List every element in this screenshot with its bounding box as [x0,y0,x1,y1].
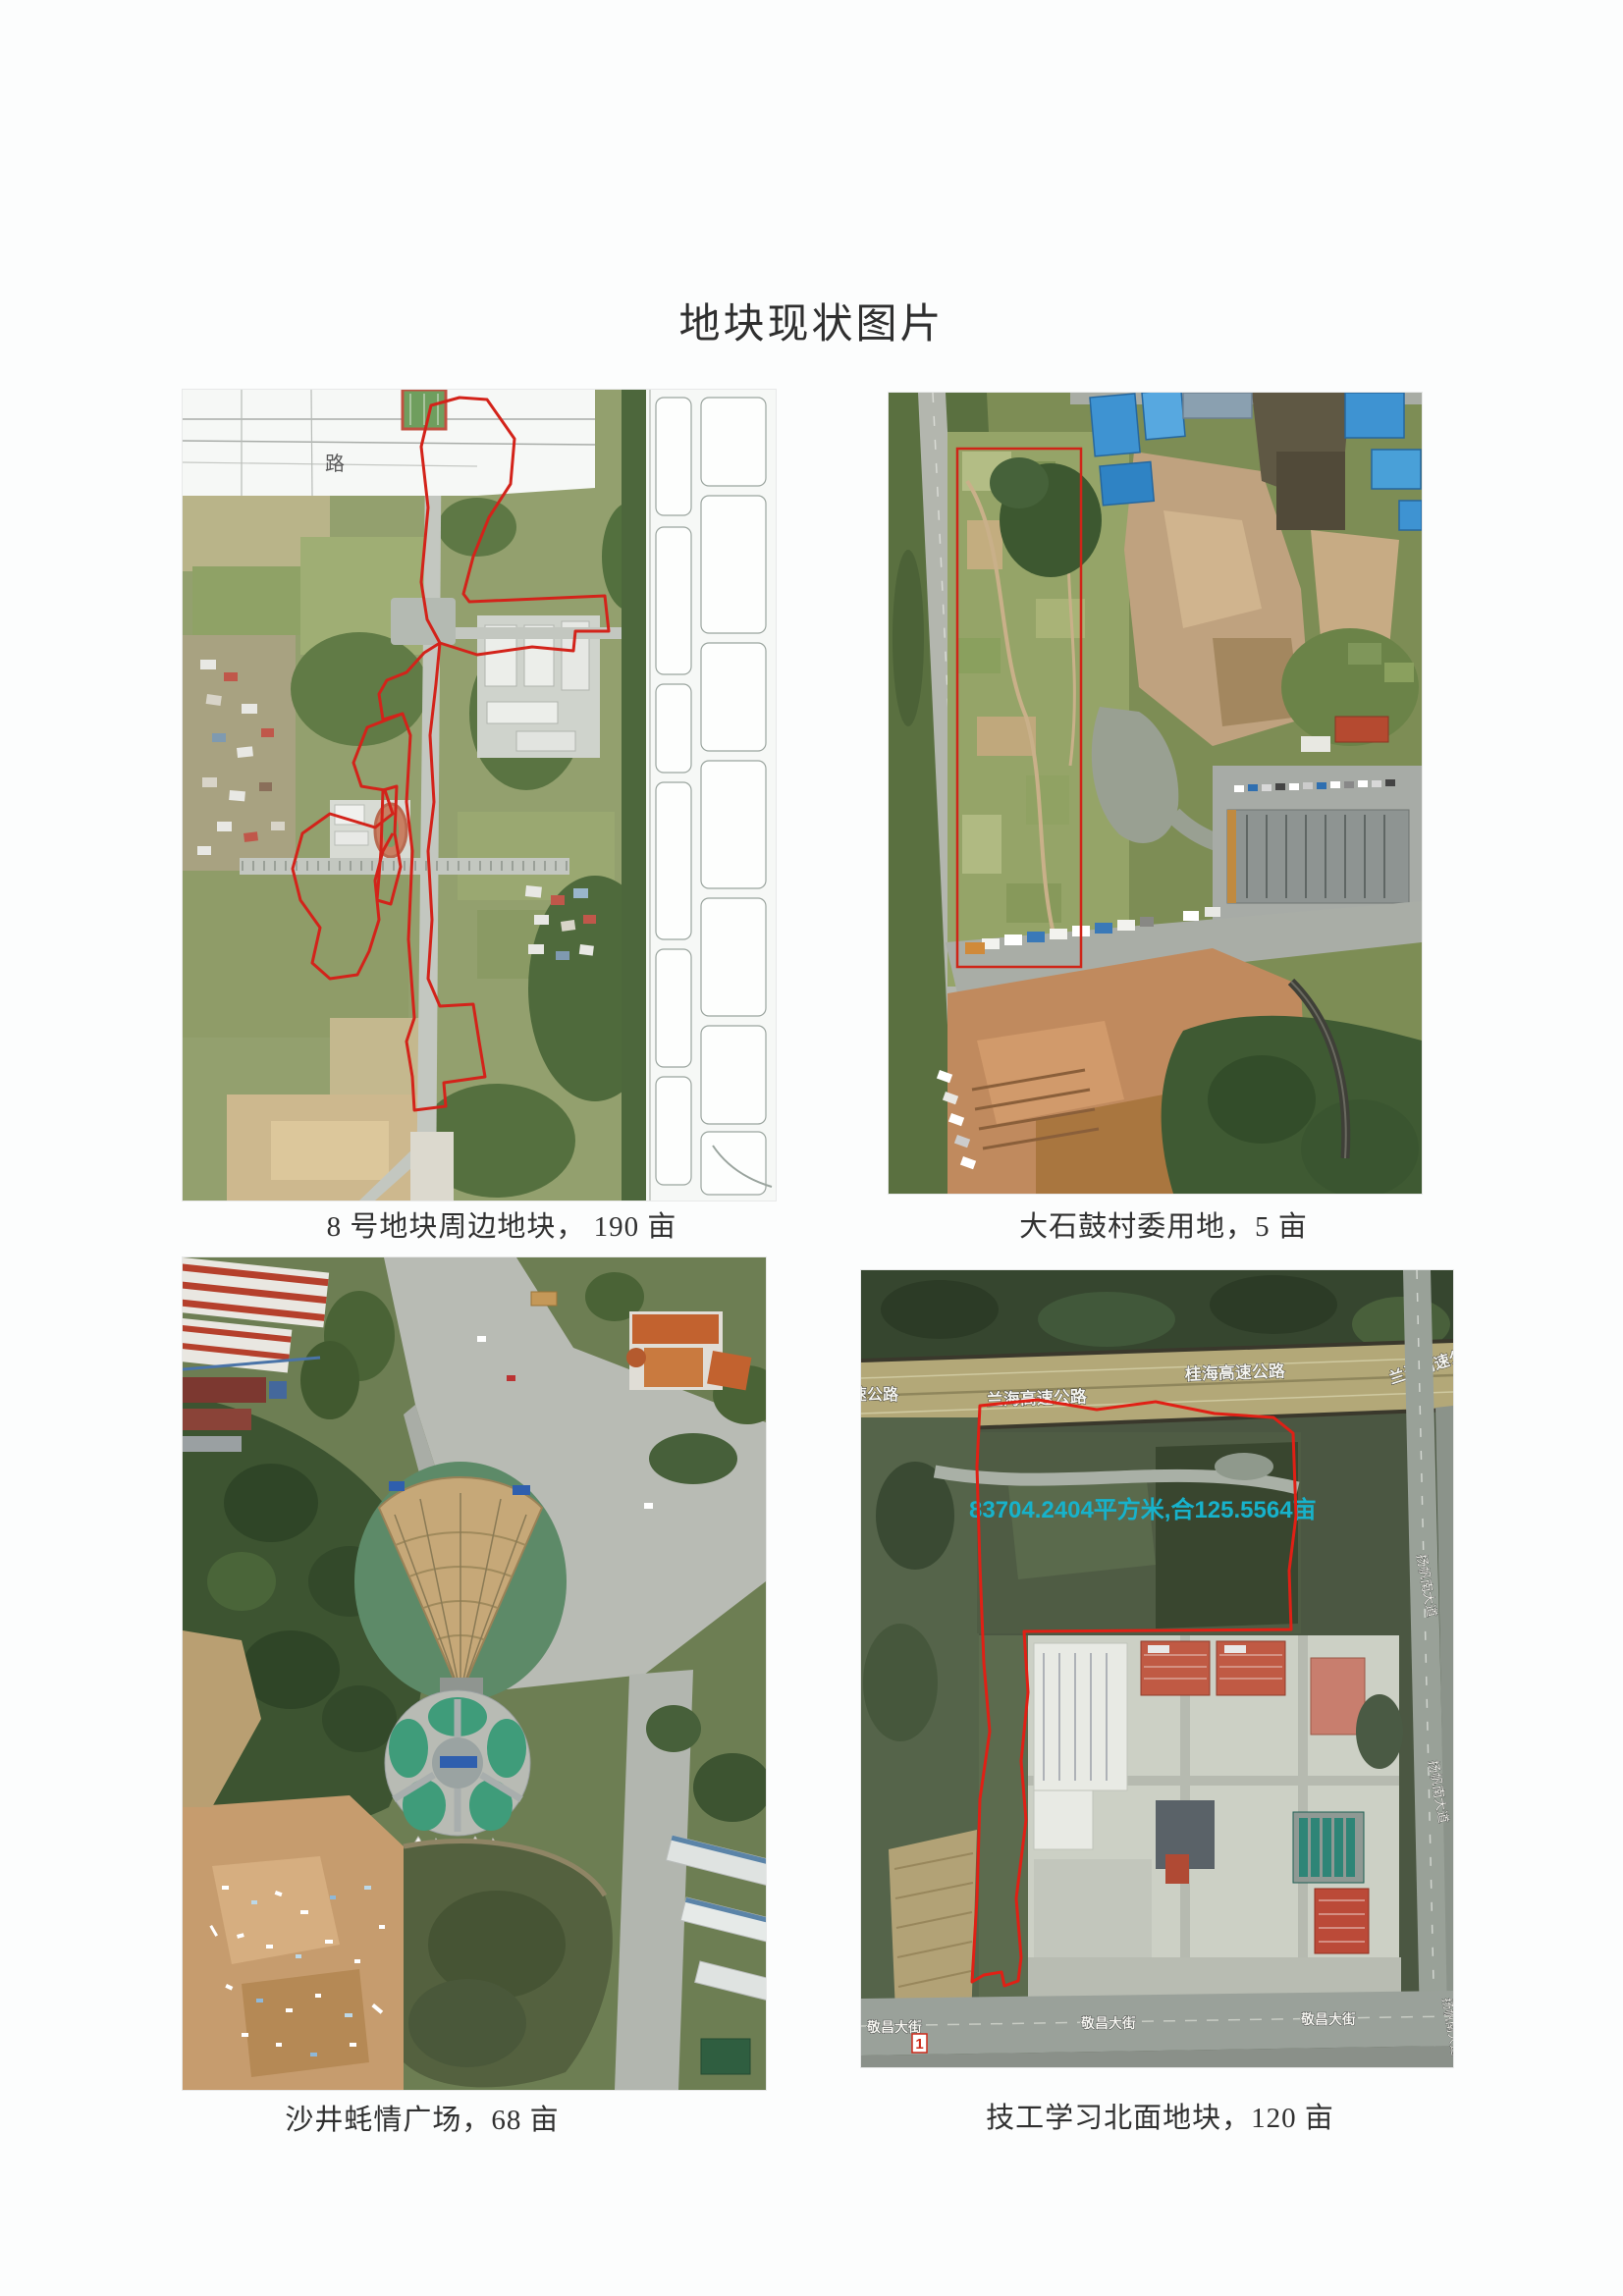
jigong-highway-label-gui: 桂海高速公路 [1183,1361,1286,1384]
dashigu-map [889,393,1422,1194]
shajing-pond [387,1841,613,2087]
aerial-image-dashigu [889,393,1422,1194]
jigong-street-label-2: 敬昌大街 [1080,2015,1136,2031]
plot8-road-label: 路 [325,453,345,475]
jigong-marker-label: 1 [915,2036,923,2053]
aerial-image-plot8: 路 [183,390,776,1201]
plot8-map: 路 [183,390,776,1201]
plot8-tree-strip [622,390,646,1201]
jigong-street-label-1: 敬昌大街 [866,2019,922,2035]
jigong-map: 桂海高速公路 兰海高速公路 兰海高速公路 兰海高速公路 扬帆南大道 扬帆南大道 [861,1270,1453,2067]
caption-plot8: 8 号地块周边地块， 190 亩 [183,1203,821,1245]
jigong-campus [1028,1635,1403,1999]
caption-shajing: 沙井蚝情广场，68 亩 [147,2097,697,2138]
shajing-map [183,1257,766,2090]
plot8-planning-overlay: 路 [183,390,595,496]
caption-dashigu: 大石鼓村委用地，5 亩 [889,1203,1438,1245]
page-title: 地块现状图片 [0,291,1623,350]
caption-jigong: 技工学习北面地块，120 亩 [864,2095,1456,2136]
plot8-cadastral-column [646,390,776,1201]
jigong-highway-label-lan-left: 兰海高速公路 [861,1385,899,1404]
document-page: 地块现状图片 [0,0,1623,2296]
jigong-bottom-street: 敬昌大街 敬昌大街 敬昌大街 扬帆南大道 1 [861,1991,1453,2067]
jigong-street-label-3: 敬昌大街 [1300,2011,1356,2027]
shajing-circle-plaza [385,1690,530,1836]
aerial-image-shajing [183,1257,766,2090]
jigong-area-text: 83704.2404平方米,合125.5564亩 [969,1496,1317,1523]
jigong-plot-interior: 83704.2404平方米,合125.5564亩 [935,1432,1317,1633]
aerial-image-jigong: 桂海高速公路 兰海高速公路 兰海高速公路 兰海高速公路 扬帆南大道 扬帆南大道 [861,1270,1453,2067]
